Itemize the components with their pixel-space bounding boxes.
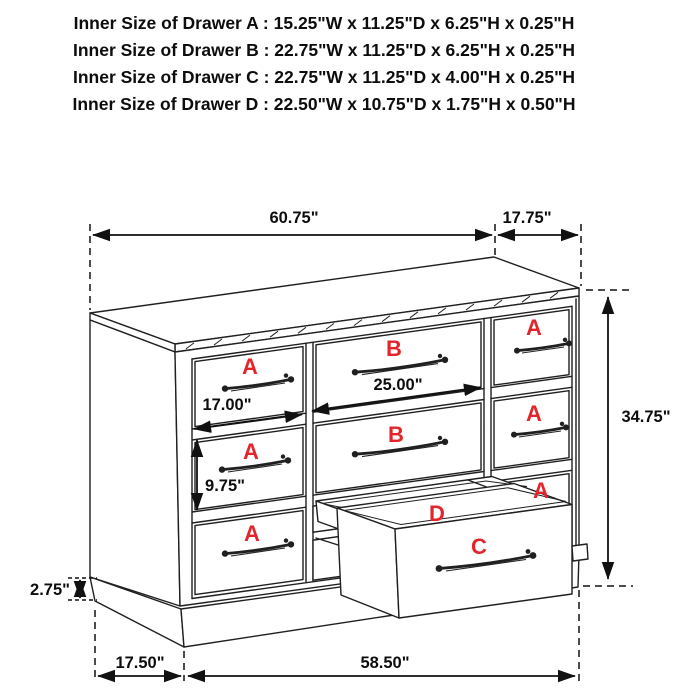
dresser-dimension-diagram: Inner Size of Drawer A : 15.25"W x 11.25… xyxy=(0,0,700,700)
label-drawer-a-left-bottom: A xyxy=(244,521,260,546)
dim-label-base-depth: 17.50" xyxy=(115,654,164,672)
label-drawer-a-right-top: A xyxy=(526,315,542,340)
right-foot-bracket xyxy=(572,544,588,561)
dim-label-overall-depth: 17.75" xyxy=(502,209,551,227)
dim-base-depth: 17.50" xyxy=(98,654,181,676)
label-drawer-b-bottom: B xyxy=(388,422,404,447)
dim-label-drawer-a-width: 17.00" xyxy=(202,396,251,414)
label-drawer-a-left-middle: A xyxy=(243,439,259,464)
dim-overall-width: 60.75" xyxy=(93,209,492,235)
label-drawer-a-left-top: A xyxy=(242,354,258,379)
dim-label-overall-height: 34.75" xyxy=(621,408,670,426)
label-drawer-c: C xyxy=(471,534,487,559)
label-drawer-b-top: B xyxy=(386,336,402,361)
spec-line-drawer-a: Inner Size of Drawer A : 15.25"W x 11.25… xyxy=(74,13,575,33)
dim-label-base-height: 2.75" xyxy=(30,581,70,599)
label-drawer-a-right-bottom: A xyxy=(533,478,549,503)
dim-base-height: 2.75" xyxy=(30,580,80,599)
spec-line-drawer-d: Inner Size of Drawer D : 22.50"W x 10.75… xyxy=(73,94,576,114)
label-drawer-d: D xyxy=(429,501,445,526)
label-drawer-a-right-middle: A xyxy=(526,401,542,426)
diagram-canvas: Inner Size of Drawer A : 15.25"W x 11.25… xyxy=(0,0,700,700)
spec-line-drawer-c: Inner Size of Drawer C : 22.75"W x 11.25… xyxy=(73,67,575,87)
dim-label-drawer-b-width: 25.00" xyxy=(373,376,422,394)
dim-label-drawer-a-height: 9.75" xyxy=(205,477,245,495)
dim-label-base-width: 58.50" xyxy=(360,654,409,672)
spec-line-drawer-b: Inner Size of Drawer B : 22.75"W x 11.25… xyxy=(73,40,575,60)
dim-label-overall-width: 60.75" xyxy=(269,209,318,227)
dim-overall-depth: 17.75" xyxy=(498,209,578,235)
dim-overall-height: 34.75" xyxy=(608,297,671,579)
left-side-panel xyxy=(90,320,180,606)
pulled-out-drawer-c xyxy=(337,484,572,619)
drawer-size-spec-header: Inner Size of Drawer A : 15.25"W x 11.25… xyxy=(73,13,576,114)
dresser-line-drawing xyxy=(90,257,588,647)
dim-base-width: 58.50" xyxy=(188,654,575,676)
